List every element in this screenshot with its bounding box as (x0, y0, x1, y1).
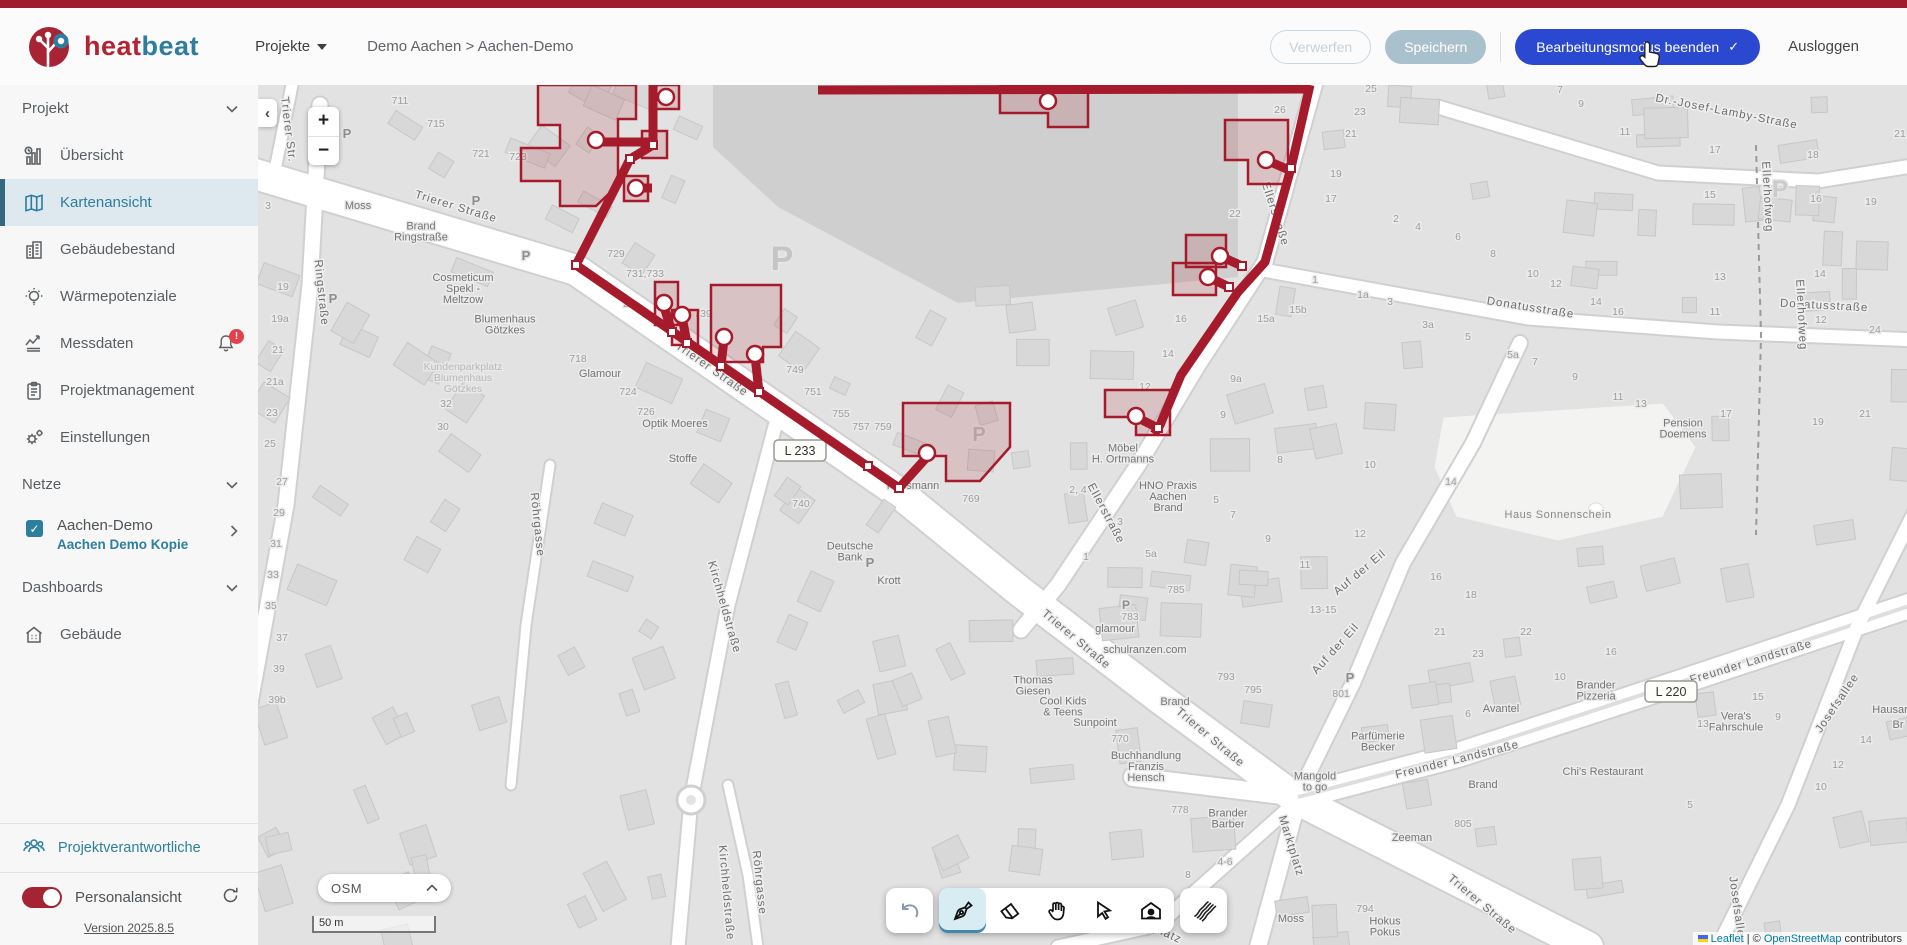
exit-edit-mode-button[interactable]: Bearbeitungsmodus beenden ✓ (1515, 29, 1760, 65)
map-building (1064, 491, 1087, 523)
map-label: 18 (1465, 589, 1477, 601)
map-building (1891, 369, 1907, 402)
project-responsible-link[interactable]: Projektverantwortliche (0, 824, 258, 872)
network-junction-node[interactable] (649, 141, 657, 149)
map-label: 10 (1364, 459, 1376, 471)
map-building (1409, 682, 1439, 708)
heatbeat-logo-icon (28, 24, 74, 70)
sidebar-item-projektmanagement[interactable]: Projektmanagement (0, 367, 258, 414)
map-label: 3 (265, 200, 271, 212)
sidebar-collapse-button[interactable]: ‹ (258, 99, 277, 127)
map-building (1109, 829, 1143, 859)
caret-down-icon (317, 44, 327, 50)
map-label: 9 (1775, 711, 1781, 723)
map-label: 3a (1422, 319, 1434, 331)
undo-button[interactable] (886, 888, 933, 933)
map-label: Haus Sonnenschein (1505, 509, 1612, 521)
map-label: 10 (1527, 268, 1539, 280)
map-label: 14 (1814, 268, 1826, 280)
map-building (1577, 546, 1604, 566)
chevron-left-icon: ‹ (265, 105, 270, 122)
map-label: PensionDoemens (1659, 418, 1707, 441)
map-label: 33 (267, 569, 279, 581)
map-building (1594, 193, 1633, 211)
sidebar-section-projekt[interactable]: Projekt (0, 85, 258, 132)
sidebar-item-gebaeudebestand[interactable]: Gebäudebestand (0, 226, 258, 273)
svg-text:L 233: L 233 (785, 444, 816, 458)
map-label: 751 (804, 386, 822, 398)
map-label: 25 (1365, 85, 1377, 95)
map-label: 8 (1490, 248, 1496, 260)
exit-edit-mode-label: Bearbeitungsmodus beenden (1536, 39, 1719, 55)
logout-link[interactable]: Ausloggen (1788, 38, 1859, 55)
people-icon (22, 835, 46, 861)
network-connection-node[interactable] (1258, 152, 1274, 168)
map-label: 8 (1185, 869, 1191, 881)
map-label: 39b (268, 694, 286, 706)
map-building (1638, 209, 1657, 236)
leaflet-link[interactable]: Leaflet (1711, 933, 1744, 945)
map-label: 14 (1590, 296, 1602, 308)
chevron-down-icon (226, 100, 238, 117)
personal-view-toggle[interactable] (22, 887, 62, 908)
map-canvas[interactable]: Trierer Str.Trierer StraßeTrierer Straße… (258, 85, 1907, 945)
map-label: 785 (1167, 584, 1185, 596)
map-label: 39 (273, 663, 285, 675)
basemap-layer-select[interactable]: OSM (318, 874, 451, 902)
map-label: 32 (440, 398, 452, 410)
map-label: 778 (1171, 804, 1189, 816)
buildings-icon (22, 238, 46, 262)
layer-select-value: OSM (331, 881, 362, 896)
map-building (1312, 904, 1338, 937)
map-label: Avantel (1483, 703, 1520, 715)
section-label: Dashboards (22, 579, 103, 596)
map-label: 23 (1354, 106, 1366, 118)
map-label: 11 (1613, 391, 1624, 403)
network-junction-node[interactable] (668, 328, 676, 336)
network-junction-node[interactable] (626, 155, 634, 163)
map-label: 9 (1265, 533, 1271, 545)
map-label: 11 (1710, 306, 1721, 318)
map-label: 718 (569, 353, 587, 365)
map-label: Sunpoint (1073, 717, 1116, 729)
lightbulb-icon (22, 285, 46, 309)
notification-bell-icon[interactable]: ! (216, 333, 238, 355)
map-building (1399, 97, 1439, 125)
map-building (1811, 97, 1827, 113)
map-building (954, 745, 988, 772)
network-junction-node[interactable] (1238, 262, 1246, 270)
map-label: 21 (272, 344, 284, 356)
map-label: 13 (1714, 271, 1726, 283)
map-label: 740 (792, 498, 810, 510)
map-label: 9 (1572, 371, 1578, 383)
map-building (1693, 204, 1735, 226)
network-connection-node[interactable] (674, 307, 690, 323)
map-label: 749 (786, 364, 804, 376)
map-label: 24 (1869, 324, 1881, 336)
network-junction-node[interactable] (717, 362, 725, 370)
map-label: 1 (1312, 274, 1318, 286)
discard-button[interactable]: Verwerfen (1270, 30, 1371, 64)
map-building (975, 285, 1010, 306)
map-label: BranderBarber (1208, 808, 1247, 831)
network-subtitle[interactable]: Aachen Demo Kopie (57, 536, 188, 554)
sidebar-item-kartenansicht[interactable]: Kartenansicht (0, 179, 258, 226)
map-label: BranderPizzeria (1576, 680, 1616, 703)
map-label: 5 (1213, 494, 1219, 506)
network-junction-node[interactable] (1154, 424, 1162, 432)
map-building (1364, 402, 1396, 430)
sidebar-section-netze[interactable]: Netze (0, 461, 258, 508)
map-building (1644, 107, 1688, 139)
gears-icon (22, 426, 46, 450)
network-connection-node[interactable] (716, 329, 732, 345)
network-connection-node[interactable] (747, 346, 763, 362)
projects-menu[interactable]: Projekte (255, 38, 327, 55)
map-label: 15 (1752, 691, 1764, 703)
map-label: 12 (1354, 528, 1366, 540)
map-label: 19a (271, 313, 289, 325)
map-label: 23 (1472, 648, 1484, 660)
map-label: 7 (1230, 509, 1236, 521)
map-building (1304, 385, 1327, 410)
map-label: 18 (1807, 149, 1819, 161)
map-label: 4-6 (1217, 856, 1232, 868)
map-label: 16 (1430, 571, 1442, 583)
map-label: 15b (1289, 304, 1307, 316)
map-label: Br (1893, 719, 1904, 731)
osm-link[interactable]: OpenStreetMap (1764, 933, 1842, 945)
app-logo[interactable]: heatbeat (28, 24, 199, 70)
map-label: 724 (619, 386, 637, 398)
check-icon: ✓ (1728, 39, 1739, 55)
map-pane[interactable]: Trierer Str.Trierer StraßeTrierer Straße… (258, 85, 1907, 945)
map-label: 726 (637, 406, 655, 418)
map-label: Moss (345, 200, 372, 212)
map-label: 12 (1815, 314, 1827, 326)
eraser-tool[interactable] (986, 888, 1033, 933)
top-accent-bar (0, 0, 1907, 8)
map-label: P (1122, 598, 1130, 612)
map-label: 21 (1434, 626, 1446, 638)
save-button[interactable]: Speichern (1385, 30, 1486, 64)
network-connection-node[interactable] (1040, 93, 1056, 109)
map-label: 715 (427, 118, 445, 130)
chevron-down-icon (226, 579, 238, 596)
map-building (1486, 85, 1504, 99)
map-label: 805 (1454, 818, 1472, 830)
network-connection-node[interactable] (658, 89, 674, 105)
chevron-down-icon (226, 476, 238, 493)
map-label: 21 (1345, 128, 1357, 140)
svg-text:L 220: L 220 (1656, 685, 1687, 699)
header-divider (1500, 32, 1501, 62)
map-label: 731,733 (626, 268, 664, 280)
map-label: 755 (832, 408, 850, 420)
map-label: 9a (1230, 373, 1242, 385)
network-junction-node[interactable] (895, 484, 903, 492)
sidebar-item-waermepotenziale[interactable]: Wärmepotenziale (0, 273, 258, 320)
map-building (1721, 564, 1755, 602)
select-cursor-tool[interactable] (1080, 888, 1127, 933)
map-building (1090, 351, 1134, 380)
map-label: 29 (273, 507, 285, 519)
map-label: schulranzen.com (1103, 644, 1186, 656)
sidebar-item-gebaeude[interactable]: Gebäude (0, 611, 258, 658)
measurement-chart-icon (22, 332, 46, 356)
personal-view-label: Personalansicht (75, 889, 182, 906)
map-label: 10 (1815, 781, 1827, 793)
map-label: 14 (1162, 348, 1174, 360)
leaflet-flag-icon (1698, 935, 1708, 942)
sidebar-item-label: Übersicht (60, 147, 123, 164)
network-connection-node[interactable] (656, 295, 672, 311)
map-building (1470, 181, 1489, 199)
map-building (1695, 692, 1716, 718)
map-label: 5 (1687, 799, 1693, 811)
map-label: 5a (1145, 548, 1157, 560)
map-label: HokusPokus (1369, 916, 1401, 939)
map-building (1310, 424, 1343, 459)
map-label: 19 (1865, 196, 1877, 208)
network-connection-node[interactable] (628, 180, 644, 196)
version-link[interactable]: Version 2025.8.5 (0, 921, 258, 945)
zoom-in-button[interactable]: + (308, 107, 339, 136)
map-building (1682, 297, 1696, 312)
home-icon (22, 623, 46, 647)
map-building (1475, 826, 1496, 846)
map-building (969, 620, 1013, 642)
map-building (1070, 443, 1087, 469)
map-label: 35 (265, 600, 277, 612)
map-label: 30 (437, 421, 449, 433)
map-building (1856, 241, 1888, 270)
app-header: heatbeat Projekte Demo Aachen > Aachen-D… (0, 8, 1907, 85)
map-label: 769 (962, 493, 980, 505)
section-label: Projekt (22, 100, 69, 117)
map-building (1842, 268, 1856, 299)
map-label: 795 (1244, 684, 1262, 696)
map-building (1869, 818, 1907, 846)
map-label: 793 (1217, 671, 1235, 683)
map-label: 9 (1578, 98, 1584, 110)
map-building (1210, 439, 1249, 472)
map-label: 16 (1810, 193, 1822, 205)
map-label: 16 (1175, 313, 1187, 325)
breadcrumb: Demo Aachen > Aachen-Demo (367, 38, 573, 55)
map-label: ThomasGiesen (1013, 675, 1053, 698)
map-building (1322, 130, 1345, 150)
map-label: 7 (1557, 85, 1563, 96)
map-label: 13-15 (1310, 604, 1337, 616)
network-connection-node[interactable] (1200, 269, 1216, 285)
map-label: P (1346, 670, 1355, 685)
sidebar-item-label: Einstellungen (60, 429, 150, 446)
chevron-right-icon[interactable] (230, 524, 238, 542)
map-label: P (472, 193, 481, 208)
sidebar-item-messdaten[interactable]: Messdaten ! (0, 320, 258, 367)
map-label: P (343, 126, 352, 141)
network-junction-node[interactable] (1287, 164, 1295, 172)
map-label: 2 (1393, 213, 1399, 225)
sidebar-item-label: Projektmanagement (60, 382, 194, 399)
map-building (1184, 539, 1209, 565)
sidebar-item-label: Messdaten (60, 335, 133, 352)
map-label: 3 (1387, 296, 1393, 308)
sidebar-item-uebersicht[interactable]: Übersicht (0, 132, 258, 179)
map-label: Zeeman (1392, 832, 1432, 844)
network-connection-node[interactable] (1212, 248, 1228, 264)
map-building (1009, 845, 1043, 875)
network-connection-node[interactable] (919, 445, 935, 461)
map-label: 21 (1859, 408, 1871, 420)
map-label: 22 (1520, 626, 1532, 638)
sidebar-network-aachen-demo[interactable]: ✓ Aachen-Demo Aachen Demo Kopie (0, 508, 258, 564)
projects-menu-label: Projekte (255, 38, 310, 55)
map-building (1011, 451, 1030, 469)
map-label: 27 (276, 476, 288, 488)
map-label: 3 (1117, 516, 1123, 528)
map-label: 11 (1620, 126, 1631, 138)
chevron-up-icon (426, 879, 438, 897)
map-label: 23 (266, 407, 278, 419)
map-label: 17 (1325, 193, 1337, 205)
map-label: Glamour (579, 368, 622, 380)
map-building (1571, 266, 1599, 289)
map-label: 21a (266, 376, 284, 388)
hatching-tool[interactable] (1180, 888, 1227, 933)
map-label: Brand (1160, 696, 1189, 708)
map-building (1563, 200, 1598, 236)
map-label: 1a (1357, 289, 1369, 301)
map-building (1006, 302, 1036, 333)
map-label: Chi's Restaurant (1563, 766, 1644, 778)
map-label: 783 (1121, 611, 1139, 623)
map-label: 22 (1229, 208, 1241, 220)
project-responsible-label: Projektverantwortliche (58, 840, 201, 856)
zoom-out-button[interactable]: − (308, 137, 339, 166)
overview-chart-icon (22, 144, 46, 168)
map-label: 16 (1612, 306, 1624, 318)
map-scale-bar: 50 m (312, 916, 436, 933)
brand-text: heatbeat (84, 31, 199, 62)
clipboard-icon (22, 379, 46, 403)
network-junction-node[interactable] (572, 261, 580, 269)
map-label: P (771, 240, 794, 278)
network-connection-node[interactable] (1128, 408, 1144, 424)
network-title: Aachen-Demo (57, 516, 188, 536)
map-building (1402, 341, 1423, 369)
map-label: 6 (1455, 231, 1461, 243)
map-building (1108, 568, 1143, 588)
map-label: Hausar (1872, 704, 1907, 716)
network-checkbox[interactable]: ✓ (26, 520, 43, 537)
map-label: 13 (1697, 718, 1709, 730)
map-label: 770 (1111, 733, 1129, 745)
map-label: 25 (264, 438, 276, 450)
map-label: 5 (1465, 331, 1471, 343)
pan-hand-tool[interactable] (1033, 888, 1080, 933)
map-label: 16 (1605, 646, 1617, 658)
map-label: 10 (1554, 671, 1566, 683)
map-label: 757 (852, 421, 870, 433)
map-label: P (329, 291, 338, 306)
map-label: 31 (270, 538, 282, 550)
map-label: 17 (1720, 408, 1732, 420)
map-label: 14 (1860, 734, 1872, 746)
map-label: Stoffe (669, 453, 698, 465)
personal-view-row: Personalansicht (0, 873, 258, 921)
map-building (1823, 231, 1843, 266)
map-label: 711 (392, 95, 409, 107)
map-label: 15 (1704, 189, 1716, 201)
map-label: 759 (874, 421, 892, 433)
map-roundabout-center (686, 795, 696, 805)
building-snap-tool[interactable] (1127, 888, 1174, 933)
map-building (1890, 447, 1907, 481)
map-building (1402, 779, 1431, 809)
sidebar: Projekt Übersicht Kartenansicht Gebäudeb… (0, 85, 258, 945)
map-label: P (1772, 176, 1788, 203)
network-junction-node[interactable] (755, 388, 763, 396)
notification-badge: ! (229, 329, 244, 344)
map-label: 17 (1709, 144, 1721, 156)
network-junction-node[interactable] (1225, 283, 1233, 291)
map-label: 9 (1220, 409, 1226, 421)
map-label: 7 (1532, 356, 1538, 368)
map-label: 15a (1257, 313, 1275, 325)
map-zoom-control: + − (308, 107, 339, 165)
map-edit-toolbar (886, 888, 1227, 933)
map-label: Moss (1278, 913, 1305, 925)
network-connection-node[interactable] (588, 132, 604, 148)
map-label: 729 (607, 248, 625, 260)
map-label: 801 (1332, 688, 1350, 700)
map-building (1503, 637, 1521, 657)
section-label: Netze (22, 476, 61, 493)
map-label: Brand (1468, 779, 1497, 791)
map-attribution: Leaflet | © OpenStreetMap contributors (1693, 932, 1907, 945)
map-label: P (522, 248, 531, 263)
sidebar-item-label: Gebäude (60, 626, 122, 643)
map-building (1833, 811, 1869, 848)
sidebar-item-label: Kartenansicht (60, 194, 152, 211)
network-junction-node[interactable] (864, 462, 872, 470)
map-label: 6 (1465, 708, 1471, 720)
network-junction-node[interactable] (683, 339, 691, 347)
map-building (1160, 603, 1202, 638)
map-label: 794 (1356, 903, 1374, 915)
map-building (1572, 857, 1603, 890)
map-label: 1 (1083, 551, 1089, 563)
road-ref-badge: L 220 (1645, 681, 1697, 702)
map-label: 21 (1894, 128, 1906, 140)
map-label: Cool Kids& Teens (1039, 696, 1087, 719)
sidebar-section-dashboards[interactable]: Dashboards (0, 564, 258, 611)
map-label: 12 (1832, 759, 1844, 771)
map-label: Optik Moeres (642, 418, 708, 430)
map-label: 19 (1812, 416, 1824, 428)
refresh-icon[interactable] (221, 886, 240, 909)
sidebar-item-einstellungen[interactable]: Einstellungen (0, 414, 258, 461)
map-label: 11 (1300, 559, 1311, 571)
map-building (1241, 701, 1273, 728)
draw-pen-tool[interactable] (939, 888, 986, 933)
map-label: 4 (1415, 221, 1421, 233)
map-label: 5a (1507, 349, 1519, 361)
